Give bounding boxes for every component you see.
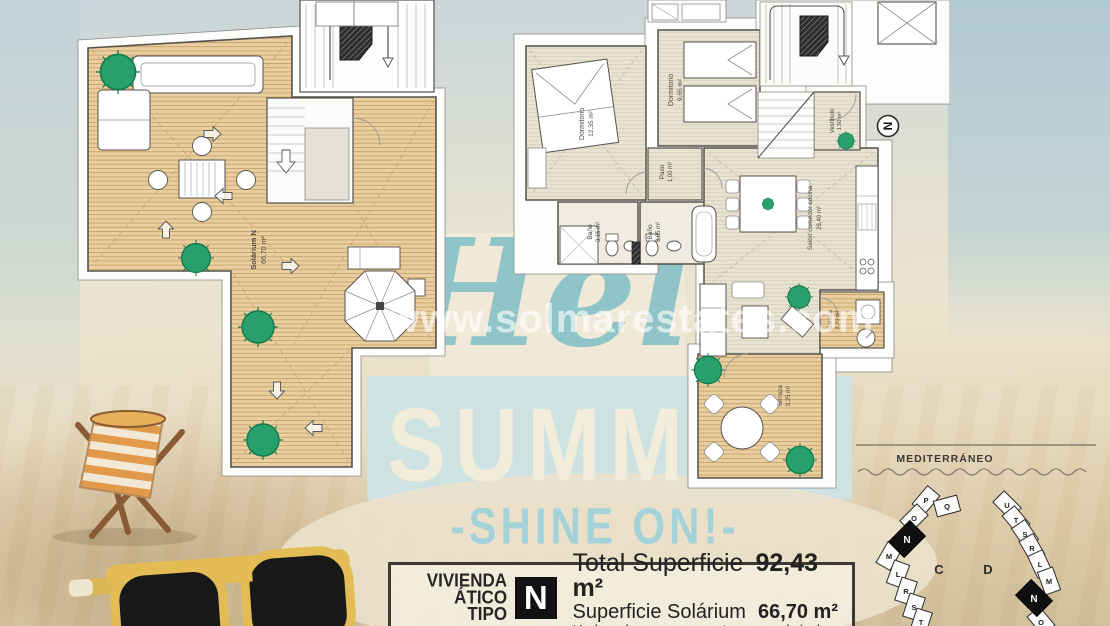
info-box: VIVIENDA ÁTICO TIPO N Total Superficie92… [388, 562, 855, 626]
block-d-label: D [983, 562, 992, 577]
north-indicator: N [878, 116, 899, 137]
sky-gradient-right [948, 0, 1110, 345]
solarium-surface-label: Superficie Solárium [573, 601, 746, 623]
building-block-c: P Q O N M L R S T C [876, 486, 961, 626]
label-dormitorio-2: Dormitorio [668, 74, 675, 106]
svg-text:S: S [911, 603, 916, 612]
hero-tagline: -SHINE ON!- [380, 497, 810, 556]
svg-text:P: P [923, 496, 928, 505]
svg-text:3,15 m²: 3,15 m² [596, 222, 602, 242]
svg-text:9,65 m²: 9,65 m² [677, 78, 684, 101]
sunglasses-illustration [60, 535, 360, 626]
svg-text:28,40 m²: 28,40 m² [817, 206, 823, 230]
dwelling-label-line2: ÁTICO TIPO [411, 589, 507, 623]
svg-text:L: L [896, 570, 901, 579]
svg-text:N: N [903, 535, 910, 546]
glasses-left-lens [113, 566, 227, 626]
solarium-label: Solárium N [249, 230, 258, 270]
label-terraza: Terraza [777, 385, 784, 407]
label-vestibulo: Vestíbulo [830, 108, 836, 133]
watermark-text: www.solmarestates.com [388, 297, 863, 342]
sea-waves [858, 469, 1086, 475]
label-salon: Salón comedor cocina [807, 185, 814, 250]
room-paso [648, 148, 702, 200]
svg-text:3,85 m²: 3,85 m² [656, 222, 662, 242]
north-letter: N [881, 122, 895, 131]
label-bano-1: Baño [647, 224, 654, 240]
label-dormitorio-1: Dormitorio [579, 108, 586, 140]
site-map: MEDITERRÁNEO P Q O N M L R [845, 435, 1105, 626]
glasses-right-lens [243, 549, 353, 626]
svg-text:1,50 m²: 1,50 m² [837, 112, 843, 131]
svg-text:N: N [1030, 594, 1037, 605]
svg-text:M: M [886, 552, 892, 561]
solarium-surface-row: Superficie Solárium66,70 m² [573, 602, 852, 622]
svg-text:O: O [911, 514, 917, 523]
svg-text:U: U [1004, 501, 1009, 510]
total-surface-row: Total Superficie92,43 m² [573, 551, 852, 602]
dwelling-type-label: VIVIENDA ÁTICO TIPO [411, 572, 507, 623]
solarium-area: 66,70 m² [261, 236, 268, 264]
svg-text:12,35 m²: 12,35 m² [588, 110, 595, 136]
label-bano-2: Baño [587, 224, 594, 240]
glasses-bridge [214, 567, 253, 584]
svg-text:T: T [919, 618, 924, 626]
glasses-temple-tip [68, 579, 93, 598]
svg-text:O: O [1038, 618, 1044, 626]
block-c-label: C [934, 562, 944, 577]
label-paso: Paso [659, 164, 666, 179]
building-block-d: U T S R L M N O D [983, 491, 1060, 626]
sea-label: MEDITERRÁNEO [896, 452, 993, 465]
svg-text:M: M [1046, 577, 1052, 586]
total-surface-label: Total Superficie [573, 549, 744, 577]
solarium-floor-plan: Solárium N 66,70 m² [55, 0, 450, 485]
svg-text:1,00 m²: 1,00 m² [668, 162, 674, 182]
svg-text:S: S [1022, 530, 1027, 539]
solarium-surface-value: 66,70 m² [758, 601, 838, 623]
surface-summary: Total Superficie92,43 m² Superficie Solá… [573, 551, 852, 626]
flyer-page: Hello SUMMER -SHINE ON!- [0, 0, 1110, 626]
type-letter-badge: N [515, 577, 556, 619]
svg-text:R: R [903, 587, 909, 596]
apartment-floor-plan: N Dormitorio 12,35 m² Dormitorio 9,65 m²… [508, 0, 950, 495]
svg-text:Q: Q [944, 502, 950, 511]
svg-text:R: R [1029, 544, 1035, 553]
svg-text:T: T [1014, 516, 1019, 525]
svg-text:9,25 m²: 9,25 m² [786, 386, 792, 406]
svg-text:L: L [1038, 560, 1043, 569]
